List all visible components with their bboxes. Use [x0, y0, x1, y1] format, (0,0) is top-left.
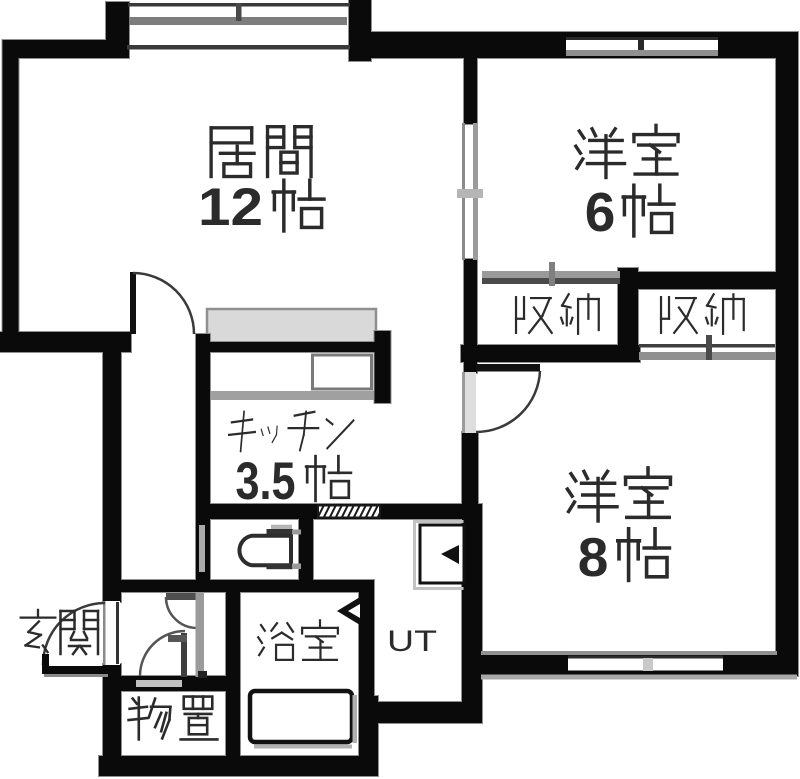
svg-text:UT: UT [387, 625, 437, 658]
svg-text:8: 8 [578, 526, 609, 588]
svg-text:6: 6 [585, 181, 616, 243]
svg-text:12: 12 [198, 178, 263, 237]
svg-text:3.5: 3.5 [236, 452, 296, 511]
